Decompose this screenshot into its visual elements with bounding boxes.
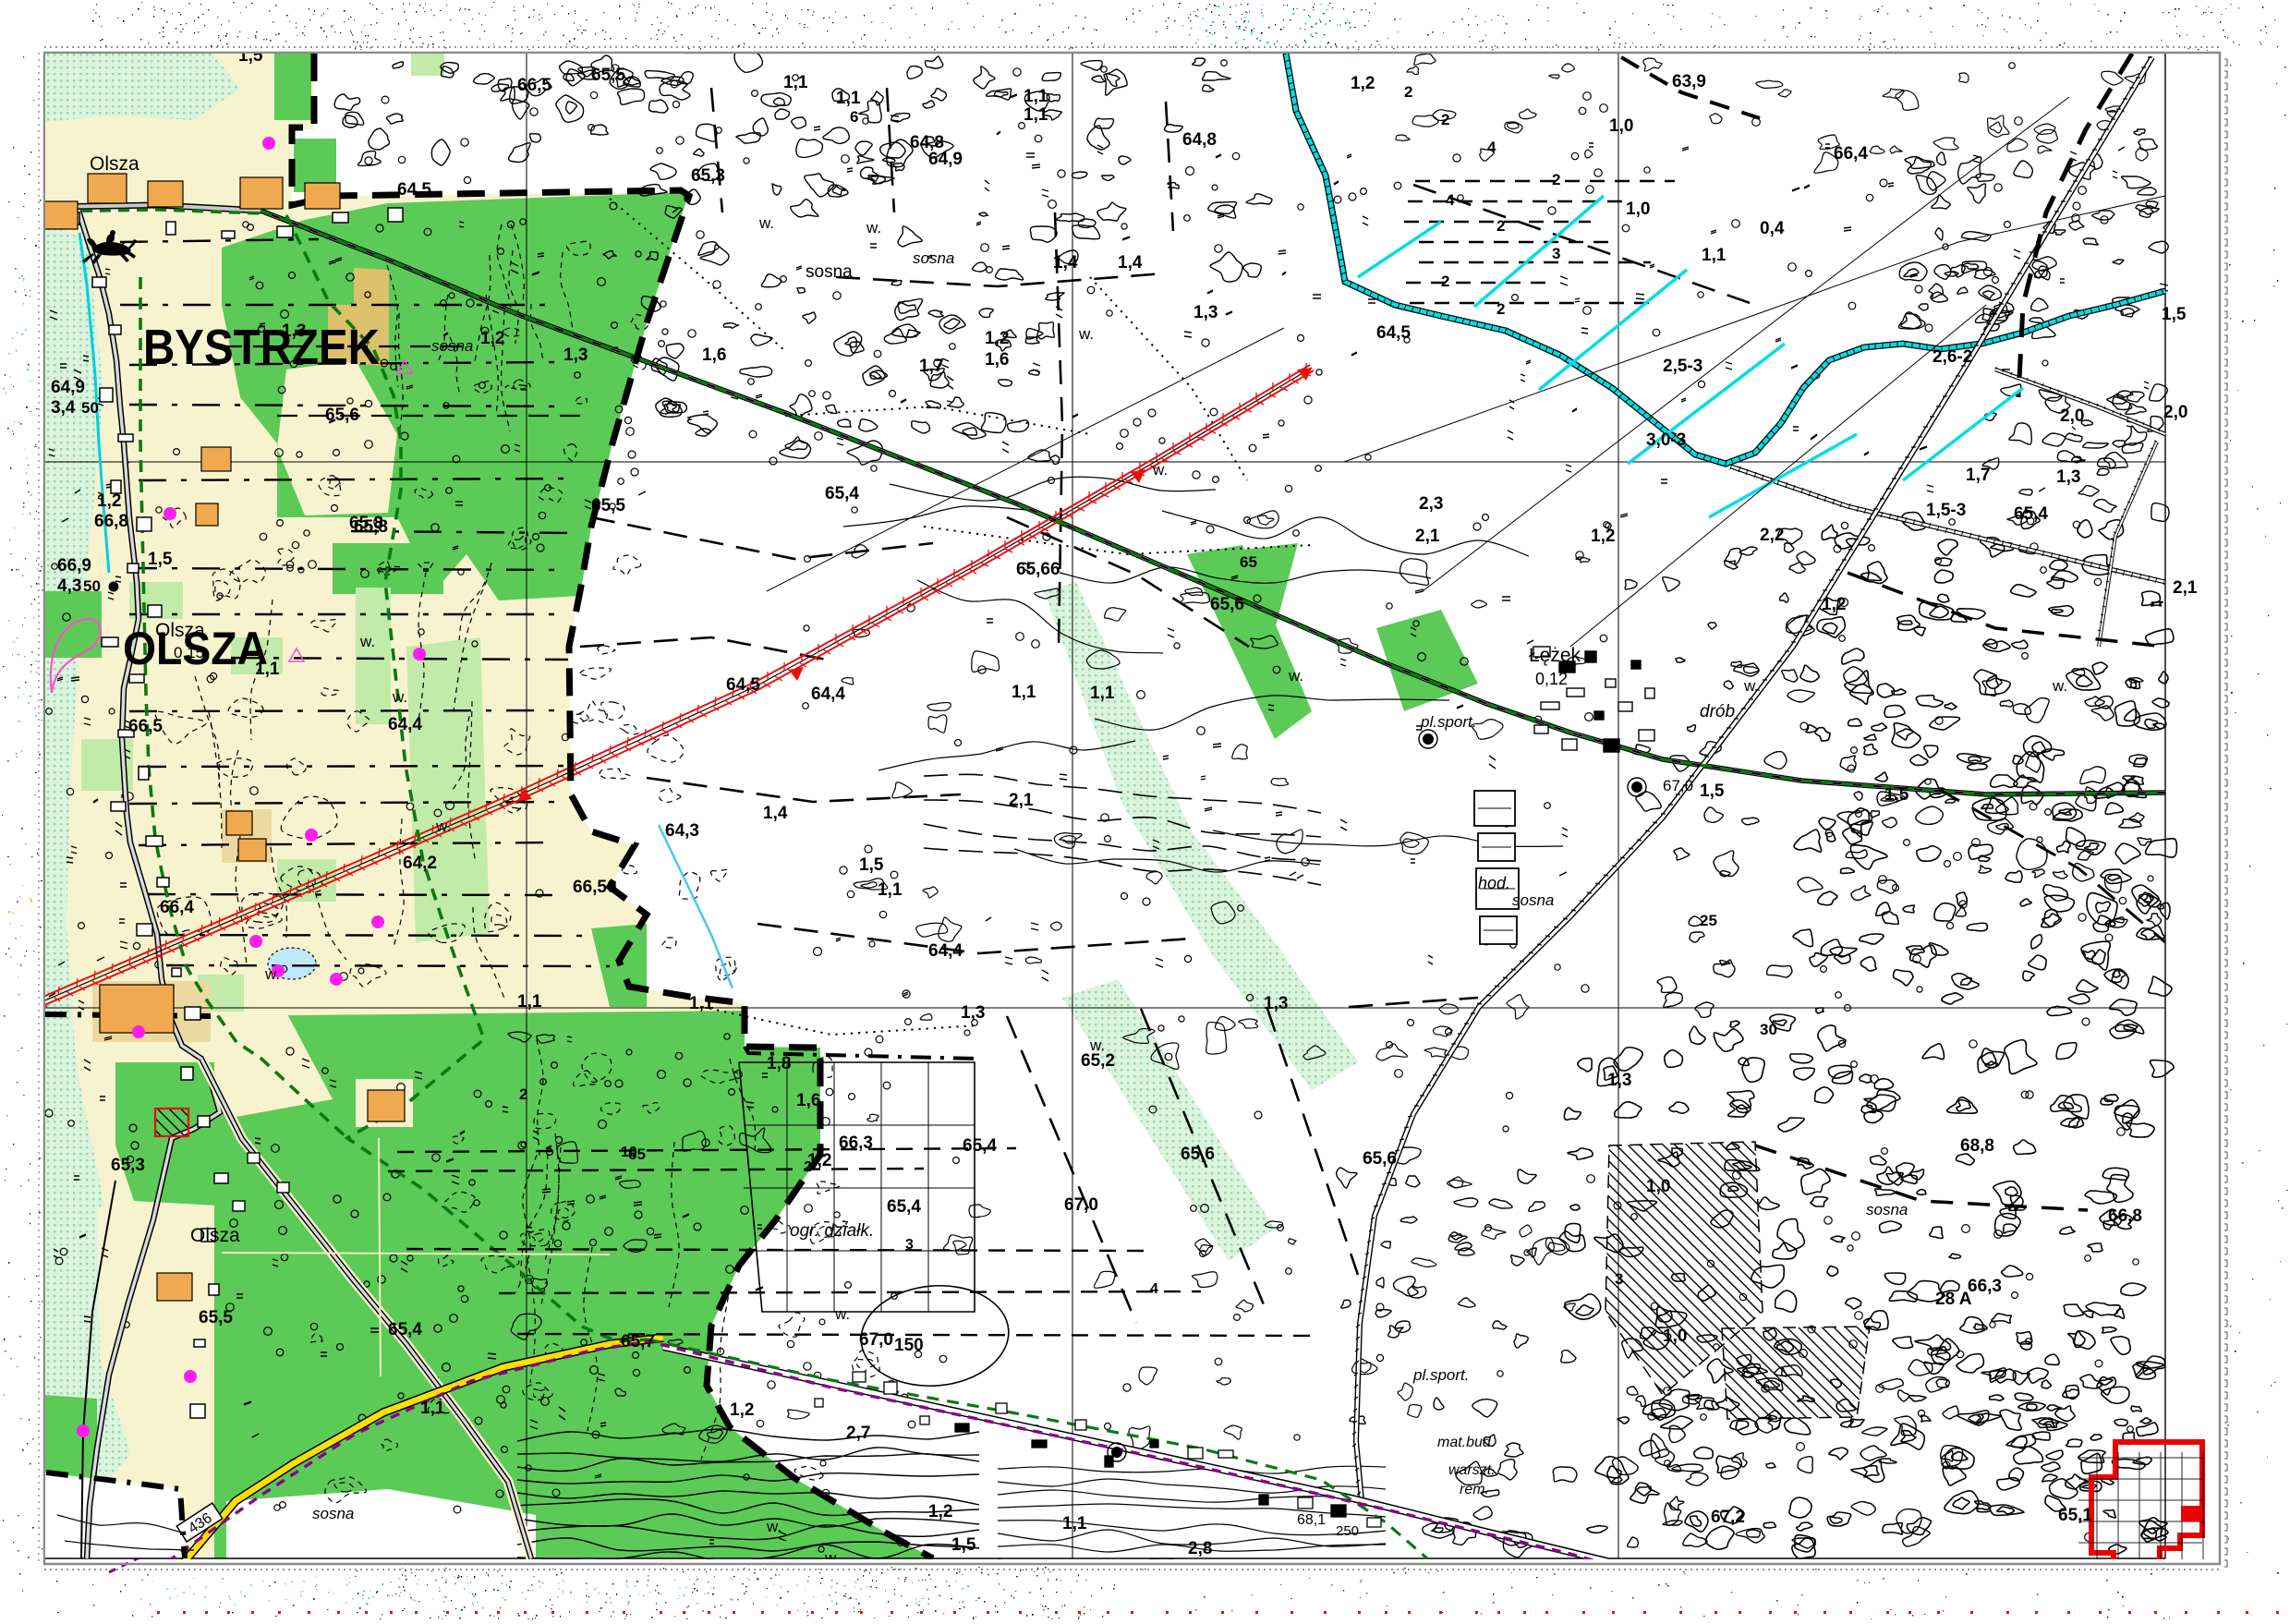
svg-text:66,9: 66,9: [57, 556, 91, 576]
svg-text:1,4: 1,4: [763, 804, 788, 823]
svg-text:1,3: 1,3: [1193, 303, 1218, 322]
svg-text:65,5: 65,5: [591, 66, 625, 85]
svg-text:w.: w.: [359, 633, 375, 650]
svg-text:4,3: 4,3: [57, 576, 81, 596]
svg-text:drób: drób: [1700, 702, 1735, 721]
svg-text:w.: w.: [1288, 667, 1303, 685]
svg-text:1,5: 1,5: [859, 855, 884, 875]
svg-text:66,5: 66,5: [517, 76, 551, 95]
svg-text:6: 6: [850, 108, 858, 126]
svg-text:sosna: sosna: [1866, 1201, 1908, 1218]
svg-text:68,8: 68,8: [1960, 1136, 1994, 1156]
svg-text:w.: w.: [2052, 677, 2067, 695]
svg-text:Łężek: Łężek: [1529, 645, 1581, 666]
svg-text:4: 4: [1150, 1281, 1158, 1297]
svg-text:0,15: 0,15: [174, 644, 204, 661]
svg-text:sosna: sosna: [806, 262, 853, 282]
svg-text:65,6: 65,6: [1181, 1145, 1215, 1164]
svg-text:65,4: 65,4: [963, 1136, 997, 1156]
svg-text:2: 2: [1496, 300, 1505, 318]
svg-text:150: 150: [894, 1336, 924, 1355]
svg-text:2,6-2: 2,6-2: [1933, 347, 1972, 367]
svg-text:1,7: 1,7: [919, 357, 943, 376]
svg-text:sosna: sosna: [312, 1505, 354, 1522]
svg-text:64,3: 64,3: [665, 821, 699, 841]
svg-text:65,5: 65,5: [199, 1308, 233, 1327]
svg-text:65,4: 65,4: [825, 484, 859, 503]
svg-text:1,1: 1,1: [1702, 246, 1727, 265]
svg-text:65,3: 65,3: [691, 166, 725, 186]
svg-text:65,8: 65,8: [349, 514, 383, 533]
svg-text:65,6: 65,6: [325, 406, 359, 425]
svg-text:1,2: 1,2: [807, 1151, 831, 1170]
svg-text:2: 2: [1441, 111, 1449, 128]
svg-text:mat.bud.: mat.bud.: [1437, 1435, 1495, 1450]
svg-text:66,4: 66,4: [160, 898, 194, 917]
svg-text:rem.: rem.: [1460, 1482, 1489, 1497]
svg-text:1,2: 1,2: [1591, 527, 1615, 546]
svg-text:65,5: 65,5: [591, 496, 625, 515]
svg-text:1,1: 1,1: [783, 73, 808, 92]
svg-text:1,0: 1,0: [1609, 116, 1633, 136]
svg-text:1,2: 1,2: [1822, 595, 1846, 614]
svg-text:1,1: 1,1: [517, 992, 542, 1012]
svg-text:w.: w.: [834, 1305, 850, 1323]
svg-text:1,2: 1,2: [730, 1400, 754, 1420]
svg-text:3: 3: [905, 1237, 914, 1253]
svg-text:2: 2: [1552, 171, 1560, 188]
svg-text:65,66: 65,66: [1016, 560, 1060, 579]
svg-text:1,4: 1,4: [1053, 253, 1078, 273]
svg-text:66,3: 66,3: [1968, 1277, 2002, 1296]
svg-text:2,2: 2,2: [1760, 526, 1784, 545]
svg-text:1,1: 1,1: [1062, 1514, 1087, 1533]
svg-text:warszt.: warszt.: [1448, 1462, 1496, 1478]
svg-text:67,0: 67,0: [1663, 777, 1693, 794]
svg-text:28 A: 28 A: [1935, 1290, 1972, 1309]
svg-text:1,6: 1,6: [985, 350, 1009, 370]
svg-text:0,12: 0,12: [1535, 670, 1568, 688]
svg-text:64,4: 64,4: [928, 941, 963, 961]
svg-text:4: 4: [1446, 191, 1455, 209]
svg-text:65,3: 65,3: [111, 1156, 145, 1175]
svg-text:1,8: 1,8: [767, 1054, 791, 1073]
svg-text:64,5: 64,5: [1376, 323, 1411, 343]
svg-text:w.: w.: [1078, 325, 1094, 343]
svg-text:4: 4: [1487, 139, 1496, 156]
svg-text:2,3: 2,3: [1419, 494, 1443, 514]
svg-text:65: 65: [1240, 553, 1257, 571]
svg-text:64,9: 64,9: [51, 378, 85, 397]
svg-text:64,4: 64,4: [388, 715, 422, 734]
svg-text:hod.: hod.: [1478, 874, 1510, 892]
svg-text:1,2: 1,2: [985, 329, 1009, 348]
svg-text:1,0: 1,0: [1646, 1177, 1670, 1196]
svg-text:1,2: 1,2: [97, 491, 121, 511]
svg-text:2: 2: [1441, 273, 1449, 290]
svg-text:2,0: 2,0: [2060, 406, 2084, 426]
svg-text:ogr. działk.: ogr. działk.: [790, 1221, 874, 1241]
svg-text:30: 30: [1760, 1021, 1777, 1038]
svg-text:pl.sport.: pl.sport.: [1412, 1366, 1469, 1384]
svg-text:1,3: 1,3: [1264, 994, 1288, 1013]
svg-text:1,3: 1,3: [282, 321, 306, 341]
svg-text:65,6: 65,6: [1363, 1149, 1397, 1169]
svg-text:w.: w.: [1743, 677, 1759, 695]
svg-text:w.: w.: [1089, 1036, 1105, 1054]
svg-text:w.: w.: [392, 688, 407, 706]
svg-text:w.: w.: [435, 818, 451, 835]
svg-text:2,8: 2,8: [1188, 1539, 1212, 1558]
svg-text:64,5: 64,5: [397, 180, 431, 200]
svg-text:1,6: 1,6: [702, 345, 726, 365]
svg-text:1,1: 1,1: [1090, 684, 1115, 703]
svg-text:2,5-3: 2,5-3: [1663, 357, 1702, 376]
svg-text:1,3: 1,3: [563, 345, 588, 365]
svg-text:2,0: 2,0: [2163, 403, 2187, 422]
svg-text:sosna: sosna: [1512, 891, 1554, 909]
svg-text:w.: w.: [766, 1518, 782, 1535]
svg-text:25: 25: [1700, 912, 1717, 929]
svg-text:65,4: 65,4: [2014, 504, 2048, 524]
svg-text:50: 50: [81, 399, 99, 417]
svg-text:1,5: 1,5: [1884, 785, 1909, 805]
svg-text:1,1: 1,1: [1024, 105, 1048, 125]
svg-text:1,5: 1,5: [951, 1535, 976, 1555]
svg-text:68,1: 68,1: [1297, 1512, 1326, 1528]
svg-text:2,7: 2,7: [846, 1424, 870, 1443]
svg-text:1,3: 1,3: [961, 1003, 985, 1023]
svg-text:1,0: 1,0: [1626, 200, 1650, 219]
svg-text:1,0: 1,0: [1663, 1327, 1687, 1346]
svg-text:1,2: 1,2: [1351, 74, 1375, 93]
svg-text:64,5: 64,5: [726, 675, 760, 695]
svg-text:Olsza: Olsza: [155, 620, 205, 641]
svg-text:BYSTRZEK: BYSTRZEK: [143, 320, 380, 375]
svg-text:2,1: 2,1: [1009, 791, 1034, 810]
svg-text:1,1: 1,1: [1024, 87, 1048, 106]
svg-text:66,3: 66,3: [839, 1133, 873, 1153]
svg-text:3,4: 3,4: [51, 398, 76, 418]
svg-text:66,50: 66,50: [573, 878, 617, 897]
svg-text:65,2: 65,2: [1081, 1051, 1115, 1071]
svg-text:1,1: 1,1: [689, 994, 714, 1013]
svg-text:sosna: sosna: [431, 337, 473, 355]
svg-text:65,1: 65,1: [2058, 1506, 2092, 1525]
svg-text:1,1: 1,1: [1012, 683, 1036, 702]
svg-text:65,4: 65,4: [388, 1320, 422, 1339]
svg-text:64,9: 64,9: [928, 150, 963, 169]
svg-text:1,5: 1,5: [2162, 305, 2187, 324]
svg-text:1,1: 1,1: [836, 89, 861, 108]
svg-text:64,2: 64,2: [403, 854, 437, 873]
svg-text:0,4: 0,4: [1760, 219, 1785, 238]
svg-text:65,6: 65,6: [1210, 595, 1244, 614]
svg-text:3: 3: [1615, 1270, 1623, 1288]
svg-text:2: 2: [1496, 217, 1505, 235]
svg-text:3: 3: [1552, 245, 1560, 262]
svg-text:w.: w.: [866, 219, 881, 236]
svg-text:63,9: 63,9: [1672, 72, 1706, 91]
svg-text:2: 2: [1404, 83, 1412, 101]
svg-text:65,7: 65,7: [621, 1332, 655, 1351]
svg-text:2: 2: [519, 1085, 527, 1103]
svg-text:1,5-3: 1,5-3: [1926, 501, 1966, 520]
svg-text:1,5: 1,5: [148, 550, 173, 569]
svg-text:64,4: 64,4: [811, 685, 845, 704]
svg-text:1,5: 1,5: [1700, 782, 1725, 801]
svg-text:Olsza: Olsza: [90, 153, 139, 175]
svg-text:1,4: 1,4: [1118, 253, 1143, 273]
svg-text:pl.sport.: pl.sport.: [1420, 713, 1476, 731]
svg-text:w.: w.: [758, 214, 774, 232]
svg-text:64,8: 64,8: [910, 133, 944, 152]
svg-text:67,0: 67,0: [859, 1330, 893, 1350]
svg-text:66,5: 66,5: [128, 717, 163, 736]
svg-text:66,8: 66,8: [2108, 1206, 2142, 1226]
svg-text:1,7: 1,7: [1966, 466, 1990, 485]
svg-text:64,8: 64,8: [1182, 130, 1217, 150]
svg-text:3,0-3: 3,0-3: [1646, 430, 1686, 450]
svg-text:w.: w.: [1152, 461, 1168, 479]
svg-text:50: 50: [83, 577, 101, 595]
svg-text:1,2: 1,2: [928, 1502, 952, 1521]
svg-text:1,6: 1,6: [796, 1091, 820, 1110]
svg-text:1,1: 1,1: [878, 880, 903, 900]
svg-text:2,1: 2,1: [2173, 578, 2198, 598]
svg-text:1,1: 1,1: [255, 660, 280, 679]
svg-text:67,0: 67,0: [1064, 1195, 1098, 1215]
svg-text:1,2: 1,2: [480, 329, 504, 348]
svg-text:250: 250: [1336, 1523, 1359, 1539]
svg-text:Olsza: Olsza: [190, 1225, 240, 1246]
svg-text:65,4: 65,4: [887, 1197, 921, 1217]
svg-text:67,2: 67,2: [1711, 1508, 1745, 1527]
svg-text:sosna: sosna: [913, 249, 954, 267]
svg-text:1,3: 1,3: [2056, 467, 2080, 487]
svg-text:65: 65: [628, 1145, 646, 1163]
svg-text:1,1: 1,1: [420, 1399, 445, 1418]
svg-text:66,8: 66,8: [94, 512, 128, 531]
svg-text:2,1: 2,1: [1415, 527, 1440, 546]
svg-text:w.: w.: [264, 965, 280, 983]
svg-text:1,3: 1,3: [1607, 1071, 1631, 1090]
svg-text:66,4: 66,4: [1834, 144, 1868, 164]
